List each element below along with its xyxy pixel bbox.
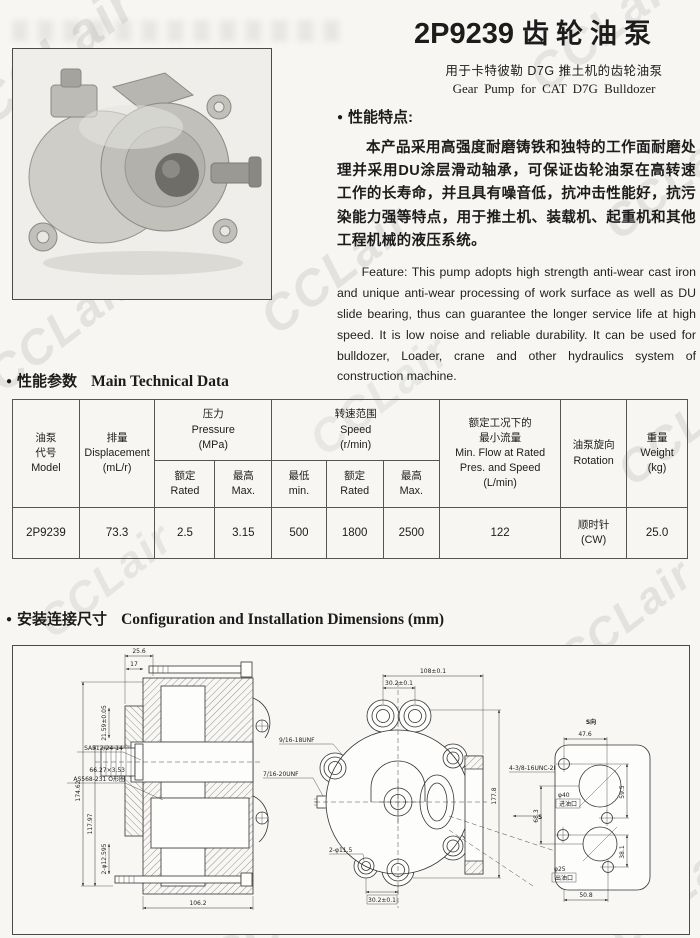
subcol-speed-min: 最低min.: [272, 461, 327, 508]
page-title: 2P9239齿轮油泵: [414, 12, 694, 51]
installation-drawing: 25.6 17 174.62 117.97 21.59±0.05 2-φ12.5…: [13, 646, 689, 934]
bleed-through-artifact: [12, 20, 342, 42]
dim-38-1: 38.1: [619, 845, 626, 859]
dim-59-5: 59.5: [619, 785, 626, 799]
features-heading: ●性能特点:: [337, 106, 696, 127]
dim-108: 108±0.1: [420, 668, 446, 675]
bullet-icon: ●: [337, 112, 343, 123]
cell-pressure-rated: 2.5: [155, 508, 215, 559]
dim-pin-holes: 2-φ12.595: [101, 843, 108, 874]
label-port-top-thread: 9/16-18UNF: [279, 737, 315, 744]
cell-rotation: 顺时针 (CW): [561, 508, 627, 559]
s-view-title: S向: [586, 718, 596, 726]
col-header-rotation: 油泵旋向 Rotation: [561, 400, 627, 508]
installation-drawing-box: 25.6 17 174.62 117.97 21.59±0.05 2-φ12.5…: [12, 645, 690, 935]
col-header-min-flow: 额定工况下的 最小流量 Min. Flow at Rated Pres. and…: [440, 400, 561, 508]
label-inlet-port: 进油口: [559, 800, 577, 808]
drawing-front-view: 108±0.1 30.2±0.1 177.8 30.2±0.1 2-φ11.5 …: [315, 668, 562, 908]
install-section-heading: ●安装连接尺寸Configuration and Installation Di…: [6, 608, 444, 629]
dim-30-2-bottom: 30.2±0.1: [368, 897, 396, 904]
features-section: ●性能特点: 本产品采用高强度耐磨铸铁和独特的工作面耐磨处理并采用DU涂层滑动轴…: [337, 106, 696, 387]
bullet-icon: ●: [6, 376, 12, 387]
dim-68-3: 68.3: [533, 809, 540, 823]
install-heading-en: Configuration and Installation Dimension…: [121, 611, 444, 628]
cell-min-flow: 122: [440, 508, 561, 559]
table-row: 2P9239 73.3 2.5 3.15 500 1800 2500 122 顺…: [13, 508, 688, 559]
cell-pressure-max: 3.15: [215, 508, 272, 559]
label-outlet-port: 出油口: [555, 874, 573, 882]
cell-speed-max: 2500: [383, 508, 440, 559]
product-photo-frame: [12, 48, 272, 300]
dim-30-2-top: 30.2±0.1: [385, 680, 413, 687]
dim-25-6: 25.6: [132, 648, 146, 655]
features-heading-text: 性能特点:: [348, 109, 413, 126]
dim-holes-11-5: 2-φ11.5: [329, 847, 352, 854]
col-header-model: 油泵 代号 Model: [13, 400, 80, 508]
cell-displacement: 73.3: [79, 508, 155, 559]
model-number: 2P9239: [414, 18, 514, 50]
col-header-pressure: 压力 Pressure (MPa): [155, 400, 272, 461]
label-oring-name: AS568-231 O形圈: [73, 775, 125, 783]
subcol-pressure-max: 最高Max.: [215, 461, 272, 508]
technical-data-table: 油泵 代号 Model 排量 Displacement (mL/r) 压力 Pr…: [12, 399, 688, 559]
label-outlet-dia: φ25: [554, 866, 566, 873]
subtitle-cn: 用于卡特彼勒 D7G 推土机的齿轮油泵: [414, 60, 694, 79]
install-heading-cn: 安装连接尺寸: [17, 611, 107, 628]
cell-speed-min: 500: [272, 508, 327, 559]
label-port-left-thread: 7/16-20UNF: [263, 771, 299, 778]
label-unc-thread: 4-3/8-16UNC-2B: [509, 765, 558, 772]
drawing-s-view: S向 47.6 59.5: [533, 718, 650, 902]
page-header: 2P9239齿轮油泵 用于卡特彼勒 D7G 推土机的齿轮油泵 Gear Pump…: [414, 12, 694, 97]
dim-shaft-dia: 21.59±0.05: [101, 705, 108, 741]
drawing-side-view: 25.6 17 174.62 117.97 21.59±0.05 2-φ12.5…: [67, 648, 270, 910]
catalog-page: CCLair CCLair CCLair CCLair CCLair CCLai…: [0, 0, 700, 938]
subcol-pressure-rated: 额定Rated: [155, 461, 215, 508]
pump-photo-illustration: [13, 49, 271, 299]
dim-50-8: 50.8: [579, 892, 593, 899]
features-paragraph-en: Feature: This pump adopts high strength …: [337, 262, 696, 387]
product-name-cn: 齿轮油泵: [522, 19, 658, 49]
subcol-speed-rated: 额定Rated: [326, 461, 383, 508]
tech-heading-en: Main Technical Data: [91, 373, 229, 390]
subcol-speed-max: 最高Max.: [383, 461, 440, 508]
dim-177-8: 177.8: [491, 787, 498, 804]
dim-117-97: 117.97: [87, 813, 94, 834]
col-header-weight: 重量 Weight (kg): [627, 400, 688, 508]
label-inlet-dia: φ40: [558, 792, 570, 799]
dim-47-6: 47.6: [578, 731, 592, 738]
bullet-icon: ●: [6, 614, 12, 625]
dim-174-62: 174.62: [75, 780, 82, 801]
label-spline: SAE12/24-14: [84, 745, 123, 752]
dim-106-2: 106.2: [189, 900, 206, 907]
dim-17: 17: [130, 661, 138, 668]
col-header-speed: 转速范围 Speed (r/min): [272, 400, 440, 461]
cell-weight: 25.0: [627, 508, 688, 559]
label-oring-size: 66.27×3.53: [89, 767, 125, 774]
cell-model: 2P9239: [13, 508, 80, 559]
tech-heading-cn: 性能参数: [17, 373, 77, 390]
features-paragraph-cn: 本产品采用高强度耐磨铸铁和独特的工作面耐磨处理并采用DU涂层滑动轴承，可保证齿轮…: [337, 137, 696, 253]
subtitle-en: Gear Pump for CAT D7G Bulldozer: [414, 81, 694, 97]
cell-speed-rated: 1800: [326, 508, 383, 559]
col-header-displacement: 排量 Displacement (mL/r): [79, 400, 155, 508]
tech-section-heading: ●性能参数Main Technical Data: [6, 370, 229, 391]
